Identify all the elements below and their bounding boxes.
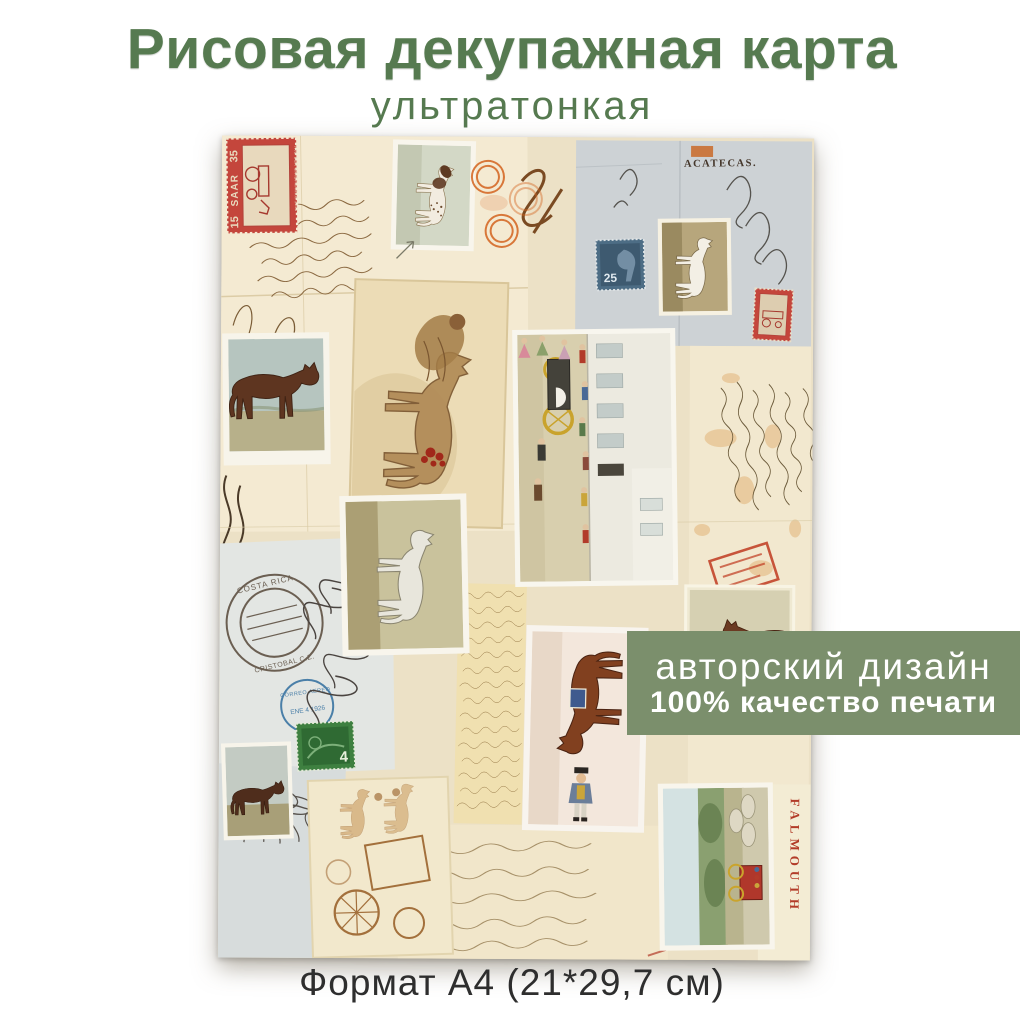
- page-title: Рисовая декупажная карта: [0, 16, 1024, 82]
- product-card: Рисовая декупажная карта ультратонкая: [0, 0, 1024, 1024]
- format-caption: Формат А4 (21*29,7 см): [0, 962, 1024, 1004]
- banner-line-design: авторский дизайн: [655, 648, 991, 685]
- postcard-bay-horse: [222, 332, 331, 465]
- vintage-collage: ACATECAS.: [218, 135, 814, 960]
- postcard-appaloosa: [391, 139, 476, 251]
- saar-caption: TAG DER BRIEFMARKE 1950: [293, 146, 299, 212]
- postcard-white-horse-sepia: [658, 218, 732, 316]
- stamp-blue: 25: [596, 239, 645, 290]
- saar-value-right: 35: [228, 150, 240, 162]
- saar-name: SAAR: [230, 174, 241, 206]
- decoupage-sheet-photo: ACATECAS.: [218, 135, 814, 960]
- postcard-gray-horse: [339, 493, 469, 656]
- postcard-sepia-sketch: [331, 279, 508, 528]
- postcard-street-scene: [512, 328, 678, 587]
- page-subtitle: ультратонкая: [0, 84, 1024, 129]
- green-stamp-value: 4: [339, 748, 349, 765]
- blue-stamp-value: 25: [604, 271, 618, 285]
- quality-banner: авторский дизайн 100% качество печати: [627, 631, 1020, 735]
- banner-line-quality: 100% качество печати: [650, 688, 997, 718]
- postcard-sepia-coach: [308, 777, 453, 958]
- saar-value-left: 15: [229, 216, 241, 228]
- zacatecas-text: ACATECAS.: [684, 158, 757, 170]
- orange-label: [691, 146, 713, 157]
- stamp-saar-small: [752, 288, 793, 341]
- stamp-saar-red: 15 SAAR 35 TAG DER BRIEFMARKE 1950: [226, 138, 299, 234]
- falmouth-text: FALMOUTH: [787, 798, 803, 914]
- postcard-falmouth-coach: [658, 782, 775, 950]
- postcard-small-bay: [221, 741, 294, 840]
- stamp-green: 4: [296, 721, 355, 771]
